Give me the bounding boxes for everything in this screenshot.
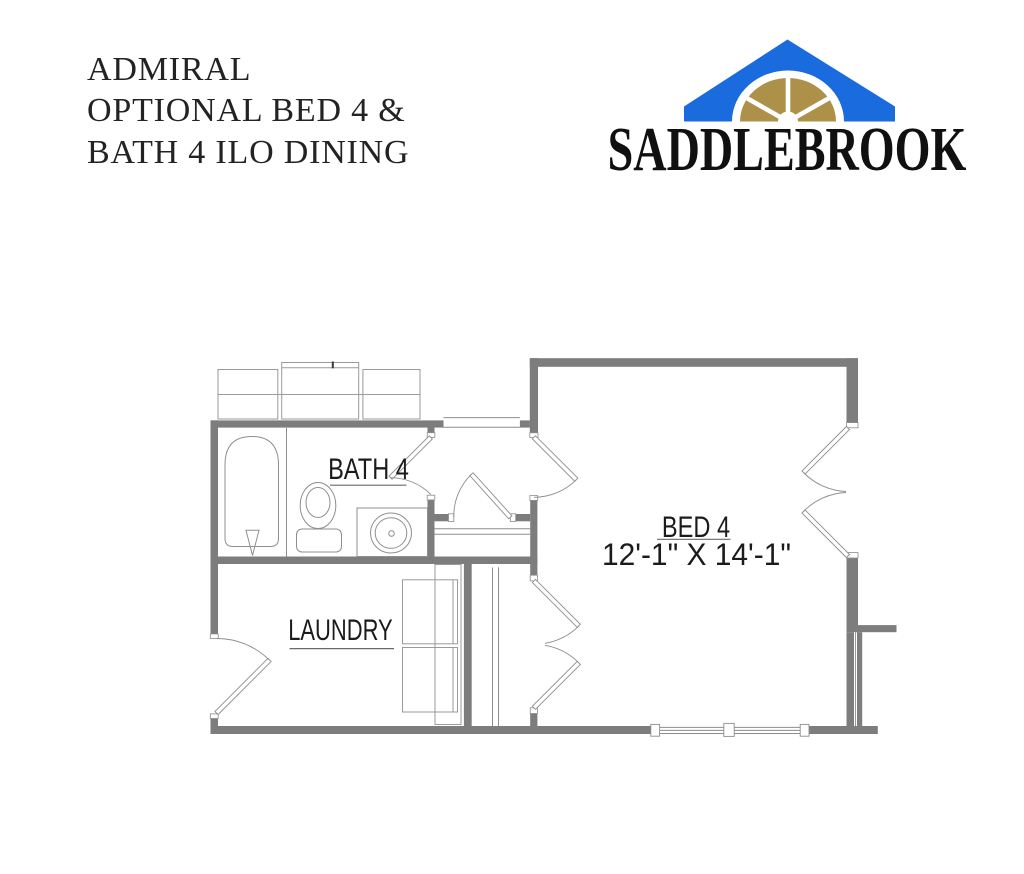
- svg-text:BATH 4: BATH 4: [328, 452, 409, 485]
- svg-text:12'-1" X 14'-1": 12'-1" X 14'-1": [602, 536, 791, 572]
- svg-text:LAUNDRY: LAUNDRY: [288, 613, 392, 647]
